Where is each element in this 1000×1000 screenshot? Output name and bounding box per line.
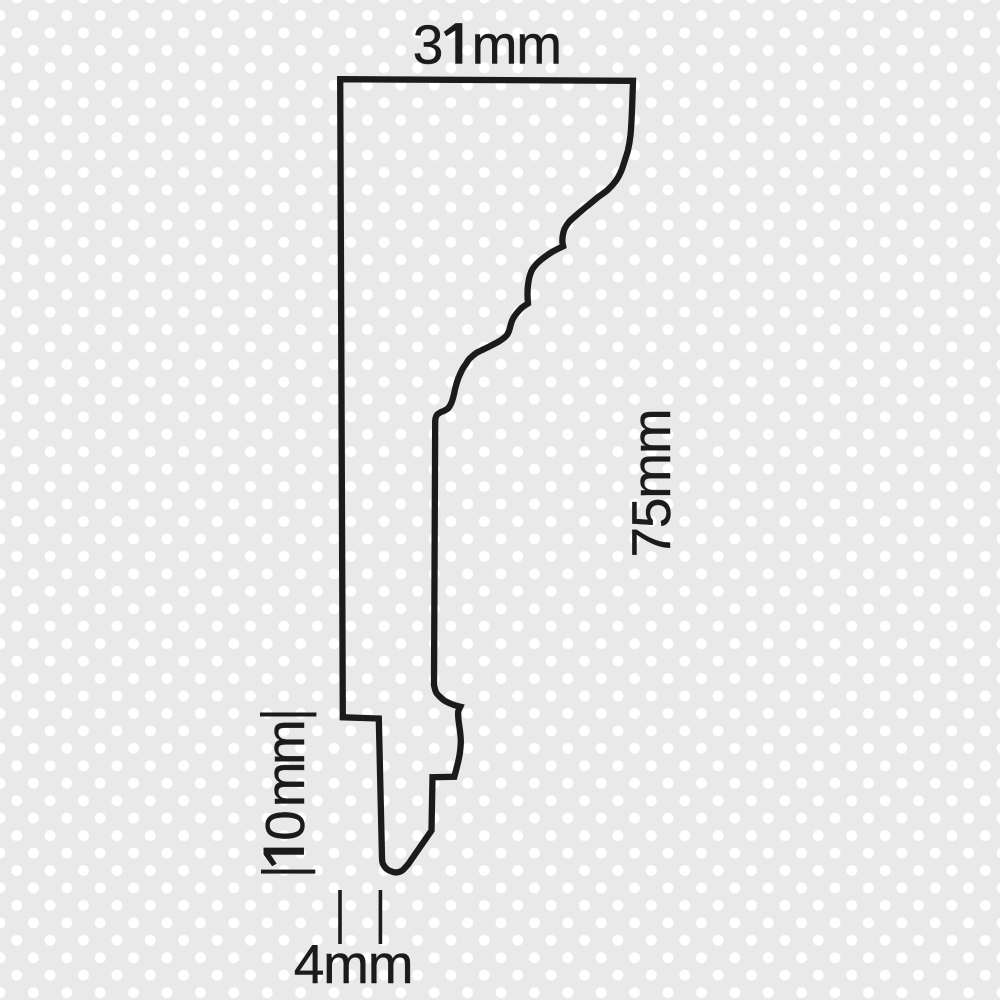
svg-text:75mm: 75mm xyxy=(620,409,682,557)
svg-text:mm: mm xyxy=(472,14,561,76)
svg-text:3: 3 xyxy=(413,14,442,76)
svg-text:0: 0 xyxy=(254,810,316,841)
svg-text:mm: mm xyxy=(254,722,316,807)
svg-text:4mm: 4mm xyxy=(294,933,413,995)
